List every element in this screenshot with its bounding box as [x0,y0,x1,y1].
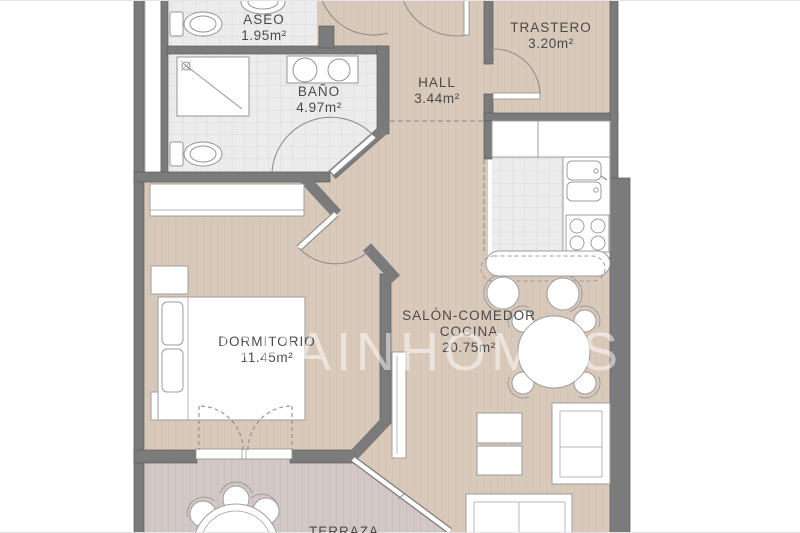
room-label-hall: HALL 3.44m² [414,75,460,107]
kitchen-top-counter [492,121,610,157]
nightstand-top [151,266,188,294]
wall-bedroom-bottom-left [134,450,197,463]
pillow [162,349,183,392]
room-name: ASEO [243,12,285,27]
room-name-line2: COCINA [402,324,536,340]
wall-trastero-left-upper [484,0,493,64]
floor-plan-drawing [0,0,800,533]
outside-left [0,0,134,533]
wardrobe [150,184,304,216]
wall-aseo-door-jamb [319,26,334,48]
room-area: 3.44m² [414,91,460,107]
room-label-bano: BAÑO 4.97m² [296,84,342,116]
bano-toilet-icon [170,142,222,166]
wall-kitchen-left [484,121,492,159]
trastero-door-leaf [493,93,540,99]
shower-icon [177,57,249,116]
sofa [466,494,572,533]
outside-right [630,178,800,533]
room-label-terraza: TERRAZA [309,524,379,533]
wall-outer-right-lower [610,178,630,533]
bathroom-vanity [287,56,358,83]
wall-aseo-bottom [167,46,384,54]
room-name: DORMITORIO [218,334,316,349]
breakfast-bar [486,251,610,276]
room-label-aseo: ASEO 1.95m² [241,12,287,44]
aseo-toilet-icon [170,12,222,36]
wall-bedroom-bottom-right [290,450,354,463]
room-area: 4.97m² [296,100,342,116]
entrance-door-leaf [464,0,469,35]
photo-top-edge [0,0,800,1]
pillow [162,302,183,345]
wall-shaft-right [161,0,168,176]
room-name: TERRAZA [309,524,379,533]
french-door-threshold [196,449,292,459]
room-area: 11.45m² [218,350,316,366]
room-label-salon: SALÓN-COMEDOR COCINA 20.75m² [402,308,536,356]
room-name: BAÑO [298,84,340,99]
floor-kitchen [492,157,563,253]
room-label-dormitorio: DORMITORIO 11.45m² [218,334,316,366]
room-area: 1.95m² [241,28,287,44]
wall-trastero-bottom [484,113,618,121]
room-name: TRASTERO [510,20,592,35]
room-name: HALL [418,75,456,90]
room-area: 20.75m² [402,340,536,356]
stove-icon [566,215,609,252]
wall-bano-hall [377,46,389,134]
floor-plan: ASEO 1.95m² TRASTERO 3.20m² BAÑO 4.97m² … [0,0,800,533]
tv-sideboard [392,352,406,458]
outside-top-right [618,0,800,178]
wall-bedroom-salon [380,274,391,424]
wall-outer-right-upper [610,0,618,180]
armchair [552,403,610,484]
shaft [145,0,161,175]
room-label-trastero: TRASTERO 3.20m² [510,20,592,52]
room-area: 3.20m² [510,36,592,52]
room-name: SALÓN-COMEDOR [402,308,536,323]
